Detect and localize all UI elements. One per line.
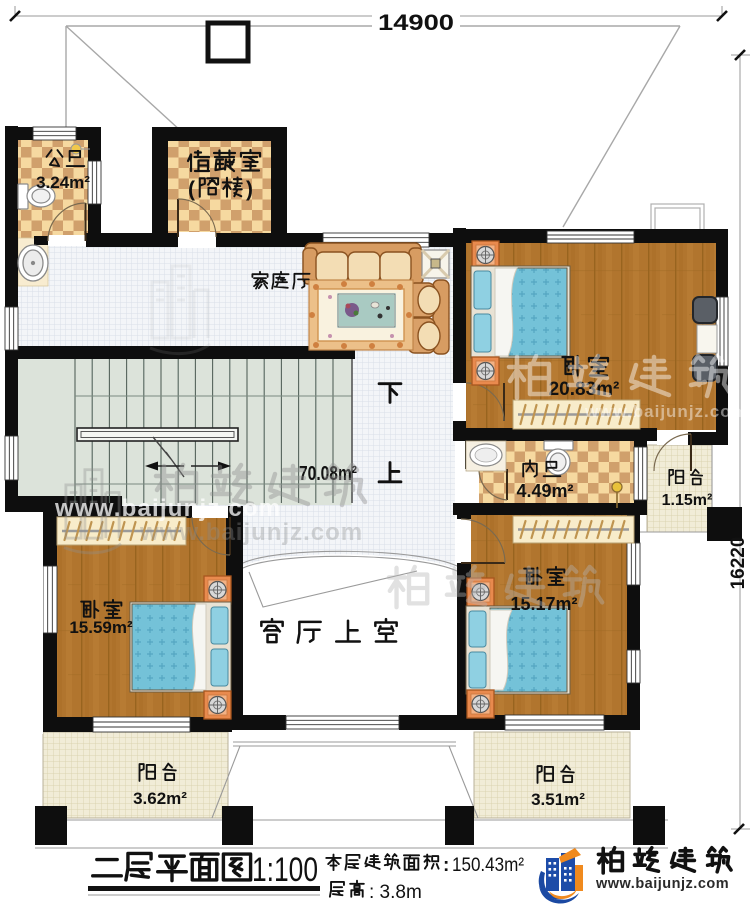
svg-text:): ) (246, 178, 253, 201)
svg-text::: : (443, 855, 449, 876)
svg-text:3.24m²: 3.24m² (36, 173, 90, 192)
svg-text:150.43m²: 150.43m² (452, 855, 524, 876)
svg-text:: 3.8m: : 3.8m (369, 882, 422, 903)
svg-text:1:100: 1:100 (252, 851, 318, 889)
svg-text:www.baijunjz.com: www.baijunjz.com (54, 495, 281, 522)
svg-text:1.15m²: 1.15m² (662, 492, 713, 509)
svg-text:3.62m²: 3.62m² (133, 789, 187, 808)
svg-text:www.baijunjz.com: www.baijunjz.com (595, 876, 729, 892)
svg-text:3.51m²: 3.51m² (531, 790, 585, 809)
svg-text:www.baijunjz.com: www.baijunjz.com (139, 519, 363, 546)
svg-text:4.49m²: 4.49m² (516, 481, 573, 501)
svg-text:16220: 16220 (728, 537, 749, 590)
svg-text:www.baijunjz.com: www.baijunjz.com (584, 402, 748, 421)
svg-text:14900: 14900 (378, 10, 454, 35)
svg-text:(: ( (188, 178, 195, 201)
svg-text:15.59m²: 15.59m² (69, 618, 133, 637)
